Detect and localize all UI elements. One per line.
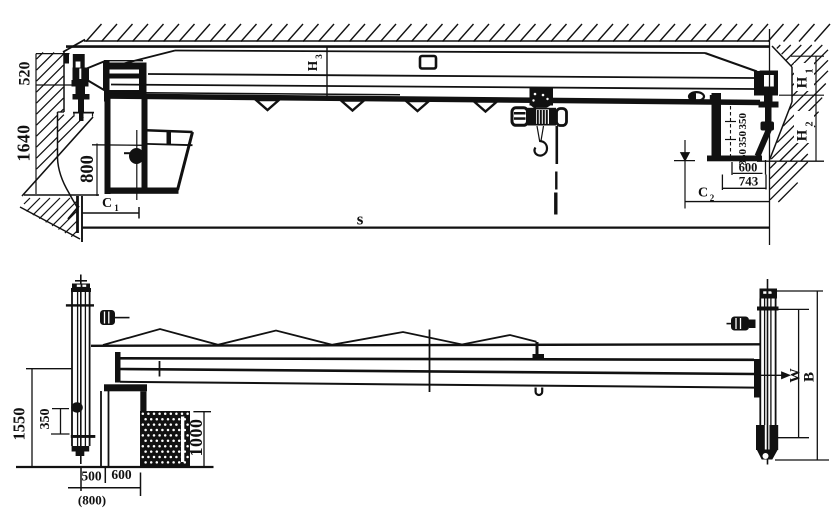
svg-text:s: s [357,210,364,229]
svg-text:350: 350 [38,409,53,430]
svg-text:600: 600 [111,467,132,482]
svg-text:1: 1 [805,69,816,74]
svg-text:350: 350 [737,130,749,147]
svg-text:B: B [802,372,818,382]
svg-text:C: C [698,186,708,201]
svg-text:C: C [102,196,112,211]
svg-text:(800): (800) [78,493,106,508]
svg-text:500: 500 [81,469,102,484]
svg-text:743: 743 [739,174,759,189]
svg-text:2: 2 [710,193,715,203]
svg-text:800: 800 [78,155,98,183]
svg-text:H: H [795,76,811,88]
svg-text:3: 3 [314,54,324,59]
svg-text:1000: 1000 [186,419,206,457]
svg-text:1640: 1640 [14,125,34,162]
svg-text:600: 600 [739,161,758,175]
svg-text:H: H [305,60,320,71]
svg-text:H: H [795,129,811,141]
svg-text:520: 520 [17,62,34,86]
svg-text:1550: 1550 [10,408,29,441]
svg-text:350: 350 [737,112,749,129]
svg-text:2: 2 [805,122,816,127]
svg-text:1: 1 [114,203,119,213]
